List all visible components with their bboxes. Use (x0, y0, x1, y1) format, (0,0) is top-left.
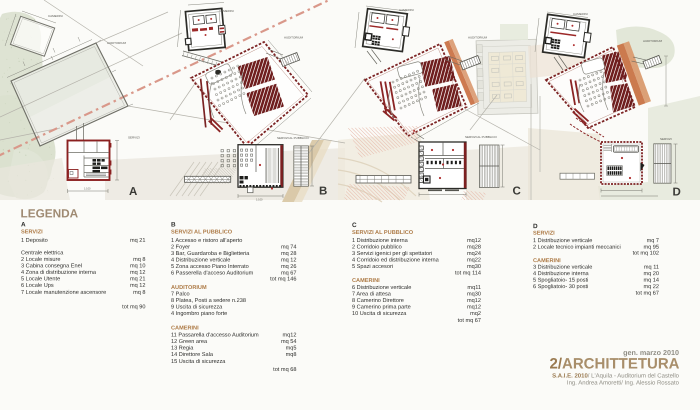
svg-text:mq 28: mq 28 (281, 251, 297, 257)
svg-text:tot mq 67: tot mq 67 (458, 318, 481, 324)
svg-text:mq 14: mq 14 (643, 278, 659, 284)
svg-text:mq12: mq12 (467, 305, 481, 311)
svg-text:LEGENDA: LEGENDA (21, 206, 79, 220)
svg-text:6 Distribuzione verticale: 6 Distribuzione verticale (352, 285, 411, 291)
svg-text:mq 26: mq 26 (281, 264, 297, 270)
svg-text:B: B (171, 221, 176, 228)
svg-text:mq 54: mq 54 (281, 339, 297, 345)
svg-text:CAMERINI: CAMERINI (171, 325, 199, 331)
svg-text:mq 11: mq 11 (644, 265, 659, 271)
svg-text:CAMERINI: CAMERINI (352, 278, 380, 284)
svg-text:3 Servizi igenici per gli spet: 3 Servizi igenici per gli spettatori (352, 251, 432, 257)
svg-text:mq22: mq22 (467, 258, 481, 264)
svg-text:6 Spogliatoio- 30 posti: 6 Spogliatoio- 30 posti (533, 284, 588, 290)
svg-text:SERVIZI: SERVIZI (21, 229, 43, 235)
svg-text:CAMERINI: CAMERINI (48, 14, 63, 18)
svg-text:15 Uscita di sicurezza: 15 Uscita di sicurezza (171, 359, 226, 365)
svg-text:AUDITORIUM: AUDITORIUM (468, 36, 487, 40)
svg-text:SERVIZI AL PUBBLICO: SERVIZI AL PUBBLICO (171, 229, 233, 235)
svg-text:9 Camerino prima parte: 9 Camerino prima parte (352, 305, 411, 311)
svg-text:mq 7: mq 7 (647, 238, 659, 244)
svg-text:AUDITORIUM: AUDITORIUM (107, 41, 126, 45)
svg-text:mq 22: mq 22 (643, 284, 659, 290)
svg-text:5 Zona accesso Piano Interrato: 5 Zona accesso Piano Interrato (171, 264, 249, 270)
svg-text:mq 12: mq 12 (281, 257, 297, 263)
svg-text:mq 12: mq 12 (130, 270, 146, 276)
svg-text:CAMERINI: CAMERINI (573, 12, 588, 16)
svg-text:4 Distribuzione interna: 4 Distribuzione interna (533, 271, 590, 277)
svg-text:tot mq 146: tot mq 146 (270, 276, 296, 282)
svg-text:mq11: mq11 (467, 285, 481, 291)
svg-text:C: C (352, 222, 357, 229)
svg-text:CAMERINI: CAMERINI (219, 9, 234, 13)
svg-text:1 Distribuzione interna: 1 Distribuzione interna (352, 238, 409, 244)
svg-text:1 Distribuzione verticale: 1 Distribuzione verticale (533, 238, 592, 244)
svg-text:mq24: mq24 (467, 251, 481, 257)
svg-text:13 Regia: 13 Regia (171, 345, 194, 351)
svg-text:2 Locale misure: 2 Locale misure (21, 257, 61, 263)
svg-text:8 Camerino Direttore: 8 Camerino Direttore (352, 298, 404, 304)
svg-text:C: C (512, 186, 520, 198)
svg-text:4 Ingombro piano forte: 4 Ingombro piano forte (171, 311, 227, 317)
svg-text:3 Distribuzione verticale: 3 Distribuzione verticale (533, 265, 592, 271)
svg-text:1:100: 1:100 (256, 198, 263, 202)
svg-text:mq5: mq5 (286, 345, 297, 351)
svg-text:tot mq 90: tot mq 90 (122, 304, 145, 310)
svg-text:mq8: mq8 (286, 352, 297, 358)
svg-text:mq12: mq12 (467, 298, 481, 304)
svg-text:D: D (533, 223, 538, 230)
svg-text:2 Locale tecnico impianti mecc: 2 Locale tecnico impianti meccanici (533, 245, 621, 251)
svg-text:S.A.I.E. 2010/ L'Aquila - Audi: S.A.I.E. 2010/ L'Aquila - Auditorium del… (552, 373, 680, 379)
svg-text:1:100: 1:100 (84, 187, 91, 191)
svg-text:SERVIZI: SERVIZI (660, 137, 672, 141)
svg-text:2/ARCHITTETURA: 2/ARCHITTETURA (549, 355, 679, 372)
svg-text:14 Direttore Sala: 14 Direttore Sala (171, 352, 214, 358)
svg-text:4 Zona di distribuzione intern: 4 Zona di distribuzione interna (21, 270, 97, 276)
svg-text:AUDITORIUM: AUDITORIUM (643, 39, 662, 43)
svg-text:mq30: mq30 (467, 292, 481, 298)
svg-text:SERVIZI: SERVIZI (128, 136, 140, 140)
svg-text:B: B (319, 186, 327, 198)
svg-text:1 Deposito: 1 Deposito (21, 238, 48, 244)
svg-text:mq30: mq30 (467, 264, 481, 270)
svg-text:3 Cabina consegna Enel: 3 Cabina consegna Enel (21, 263, 82, 269)
svg-text:SERVIZI AL PUBBLICO: SERVIZI AL PUBBLICO (277, 136, 310, 140)
svg-text:mq12: mq12 (467, 238, 481, 244)
svg-text:5 Spogliatoio- 15 posti: 5 Spogliatoio- 15 posti (533, 278, 588, 284)
svg-text:D: D (672, 187, 680, 199)
svg-text:mq 20: mq 20 (643, 271, 659, 277)
svg-text:6 Locale Ups: 6 Locale Ups (21, 283, 54, 289)
svg-text:2 Corridoio pubblico: 2 Corridoio pubblico (352, 245, 402, 251)
svg-text:tot mq 102: tot mq 102 (633, 251, 659, 257)
svg-text:mq 12: mq 12 (130, 283, 146, 289)
svg-text:4 Corridoio ed distribuzione i: 4 Corridoio ed distribuzione interna (352, 258, 440, 264)
svg-text:tot mq 114: tot mq 114 (455, 271, 481, 277)
svg-text:mq28: mq28 (467, 245, 481, 251)
svg-text:SERVIZI AL PUBBLICO: SERVIZI AL PUBBLICO (465, 135, 498, 139)
svg-text:12 Green area: 12 Green area (171, 339, 208, 345)
svg-text:CAMERINI: CAMERINI (399, 8, 414, 12)
svg-text:11 Passarella d'accesso Audito: 11 Passarella d'accesso Auditorium (171, 332, 259, 338)
svg-text:SERVIZI: SERVIZI (533, 231, 555, 237)
svg-text:mq 74: mq 74 (281, 244, 297, 250)
svg-text:mq 21: mq 21 (130, 238, 146, 244)
svg-text:7 Area di attesa: 7 Area di attesa (352, 292, 392, 298)
svg-text:1 Accesso e ristoro all'aperto: 1 Accesso e ristoro all'aperto (171, 238, 242, 244)
svg-text:A: A (129, 186, 137, 198)
svg-text:mq 8: mq 8 (133, 257, 145, 263)
svg-text:6 Passerella d'acceso Auditori: 6 Passerella d'acceso Auditorium (171, 270, 254, 276)
svg-text:mq 8: mq 8 (133, 290, 145, 296)
svg-text:CAMERINI: CAMERINI (533, 258, 561, 264)
svg-text:mq 21: mq 21 (130, 276, 146, 282)
svg-text:mq 10: mq 10 (130, 263, 146, 269)
svg-text:A: A (21, 221, 26, 228)
svg-text:AUDITORIUM: AUDITORIUM (171, 285, 207, 291)
svg-text:5 Spazi accesori: 5 Spazi accesori (352, 264, 393, 270)
svg-text:mq12: mq12 (282, 332, 296, 338)
svg-text:Ing. Andrea Amoretti/ Ing. Ale: Ing. Andrea Amoretti/ Ing. Alessio Rossa… (567, 380, 680, 386)
svg-text:7 Locale manutenzione ascensor: 7 Locale manutenzione ascensore (21, 290, 106, 296)
svg-text:4 Distribuzione verticale: 4 Distribuzione verticale (171, 257, 230, 263)
svg-text:mq2: mq2 (470, 311, 481, 317)
svg-text:2 Foyer: 2 Foyer (171, 244, 190, 250)
svg-text:5 Locale Utente: 5 Locale Utente (21, 276, 60, 282)
svg-text:SERVIZI AL PUBBLICO: SERVIZI AL PUBBLICO (352, 230, 414, 236)
svg-text:AUDITORIUM: AUDITORIUM (284, 36, 303, 40)
svg-text:9 Uscita di sicurezza: 9 Uscita di sicurezza (171, 304, 223, 310)
svg-text:tot mq 67: tot mq 67 (636, 291, 659, 297)
svg-text:3 Bar, Guardaroba e Biglietter: 3 Bar, Guardaroba e Biglietteria (171, 251, 250, 257)
svg-text:tot mq 68: tot mq 68 (273, 367, 296, 373)
svg-text:7 Palco: 7 Palco (171, 291, 190, 297)
svg-text:Centrale elettrica: Centrale elettrica (21, 250, 64, 256)
svg-text:8 Platea, Posti a sedere n.238: 8 Platea, Posti a sedere n.238 (171, 298, 246, 304)
svg-text:10 Uscita di sicurezza: 10 Uscita di sicurezza (352, 311, 407, 317)
